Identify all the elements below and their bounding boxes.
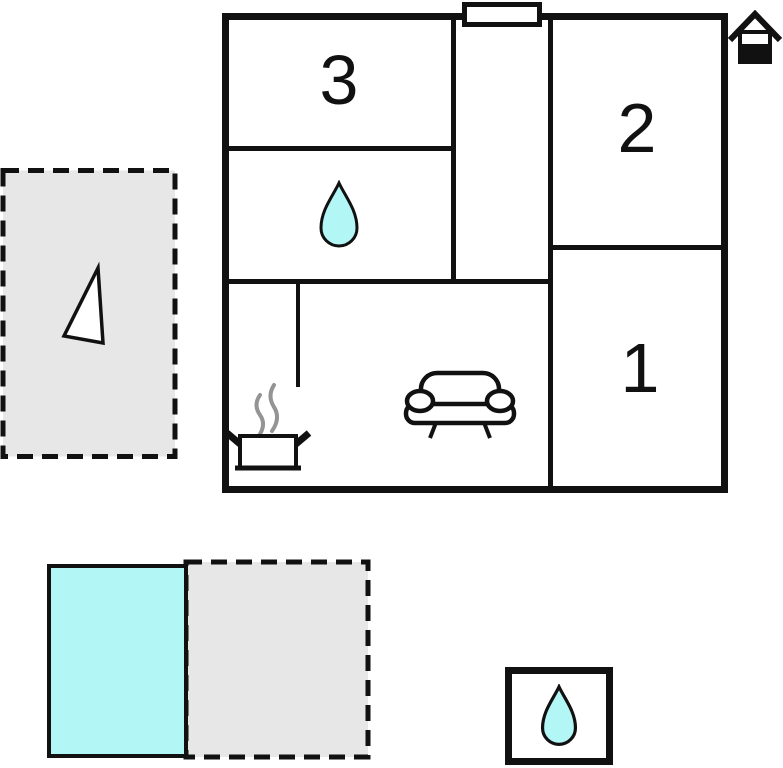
cooking-pot-steam-icon — [222, 380, 317, 475]
water-drop-icon — [536, 684, 582, 748]
sofa-icon — [400, 365, 520, 445]
steam-wave-right — [271, 385, 278, 431]
water-drop-shape — [543, 687, 576, 745]
room-2-label: 2 — [618, 93, 657, 163]
patio-dashed-outline — [186, 562, 368, 757]
water-drop-shape — [321, 183, 357, 246]
wall-room2-room1 — [553, 245, 721, 250]
room-1-label: 1 — [621, 333, 660, 403]
terrace-area — [0, 167, 182, 460]
water-drop-icon — [318, 180, 360, 250]
sofa-arm-left — [407, 391, 433, 411]
patio-area — [183, 559, 371, 761]
water-drop-square — [505, 667, 613, 765]
steam-wave-left — [257, 395, 264, 437]
wall-room3-bathroom — [229, 146, 456, 151]
wall-corridor-right — [548, 20, 553, 486]
house-body-fill — [742, 44, 768, 60]
pot-body — [240, 436, 296, 468]
wall-living-top — [229, 279, 553, 284]
swimming-pool — [47, 564, 188, 758]
floor-plan-canvas: 3 2 1 — [0, 0, 783, 768]
house-icon — [727, 10, 783, 66]
entrance-door — [462, 2, 542, 27]
wall-kitchen-partition — [296, 284, 300, 387]
room-3-label: 3 — [320, 45, 359, 115]
wall-corridor-left — [451, 20, 456, 284]
sofa-arm-right — [487, 391, 513, 411]
